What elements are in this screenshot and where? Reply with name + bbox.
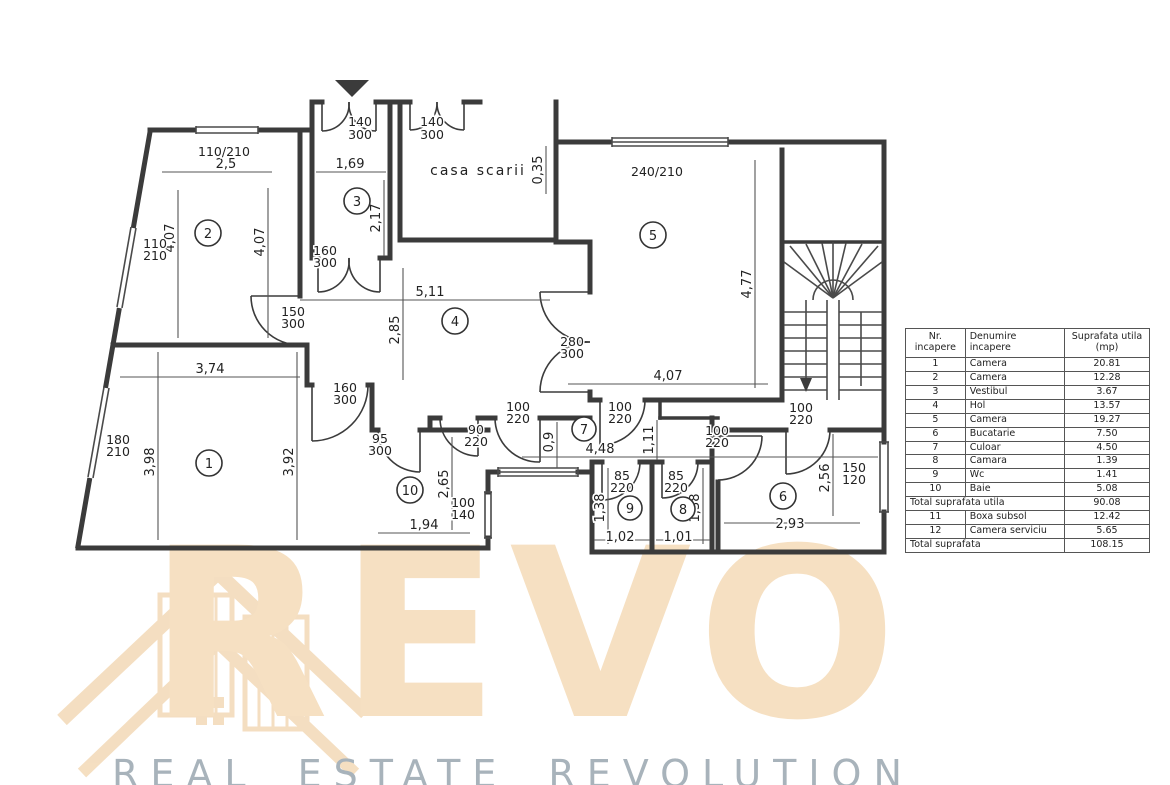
- svg-text:220: 220: [610, 480, 634, 495]
- svg-text:140: 140: [451, 507, 475, 522]
- entrance-arrow-icon: [335, 80, 369, 97]
- table-row: 9Wc1.41: [906, 469, 1150, 483]
- total-value: 108.15: [1064, 538, 1149, 552]
- svg-text:210: 210: [106, 444, 130, 459]
- table-row: 2Camera12.28: [906, 371, 1150, 385]
- total-utila-label: Total suprafata utila: [906, 497, 1065, 511]
- table-total-utila-row: Total suprafata utila 90.08: [906, 497, 1150, 511]
- room-5-number: 5: [649, 229, 657, 244]
- table-total-row: Total suprafata 108.15: [906, 538, 1150, 552]
- svg-text:300: 300: [313, 255, 337, 270]
- room-4-number: 4: [451, 315, 459, 330]
- svg-text:220: 220: [608, 411, 632, 426]
- svg-text:220: 220: [705, 435, 729, 450]
- dim-vestibul-width: 1,69: [336, 157, 365, 172]
- dim-vestibul-height: 2,17: [369, 204, 384, 233]
- interior-walls: [113, 130, 884, 552]
- room-2-number: 2: [204, 227, 212, 242]
- room-3-number: 3: [353, 195, 361, 210]
- staircase: [784, 242, 882, 400]
- room-7-number: 7: [580, 423, 588, 438]
- table-row: 11Boxa subsol12.42: [906, 511, 1150, 525]
- room-9-number: 9: [626, 502, 634, 517]
- table-header-row: Nr.incapere Denumireincapere Suprafata u…: [906, 329, 1150, 358]
- dim-wall-thickness: 0,35: [531, 156, 546, 185]
- table-row: 10Baie5.08: [906, 483, 1150, 497]
- table-row: 6Bucatarie7.50: [906, 427, 1150, 441]
- total-utila-value: 90.08: [1064, 497, 1149, 511]
- svg-text:300: 300: [333, 392, 357, 407]
- svg-text:300: 300: [368, 443, 392, 458]
- svg-text:300: 300: [348, 127, 372, 142]
- dim-bucatarie-height: 2,56: [818, 464, 833, 493]
- dim-room1-width: 3,74: [196, 362, 225, 377]
- total-label: Total suprafata: [906, 538, 1065, 552]
- header-nr: Nr.incapere: [906, 329, 966, 358]
- svg-text:220: 220: [464, 434, 488, 449]
- dim-room2-width: 2,5: [216, 157, 237, 172]
- header-denumire: Denumireincapere: [965, 329, 1064, 358]
- window-room2-top-label: 110/210: [198, 144, 250, 159]
- room-8-number: 8: [679, 503, 687, 518]
- room-6-number: 6: [779, 490, 787, 505]
- table-row: 1Camera20.81: [906, 358, 1150, 372]
- dim-room5-height: 4,77: [740, 270, 755, 299]
- table-row: 5Camera19.27: [906, 413, 1150, 427]
- staircase-label: casa scarii: [430, 163, 526, 179]
- dim-room5-width: 4,07: [654, 369, 683, 384]
- header-suprafata: Suprafata utila(mp): [1064, 329, 1149, 358]
- dim-room1-left: 3,98: [143, 448, 158, 477]
- dim-room2-right: 4,07: [253, 228, 268, 257]
- dim-culoar-length: 4,48: [586, 442, 615, 457]
- window-room5-label: 240/210: [631, 164, 683, 179]
- svg-text:300: 300: [281, 316, 305, 331]
- table-row: 4Hol13.57: [906, 399, 1150, 413]
- dim-camara-width: 1,01: [664, 530, 693, 545]
- dim-bucatarie-width: 2,93: [776, 517, 805, 532]
- room-areas-table: Nr.incapere Denumireincapere Suprafata u…: [905, 328, 1150, 553]
- dim-room1-right: 3,92: [282, 448, 297, 477]
- dim-baie-width: 1,94: [410, 518, 439, 533]
- svg-text:220: 220: [664, 480, 688, 495]
- dim-wc-height: 1,38: [593, 494, 608, 523]
- dim-hol-width: 5,11: [416, 285, 445, 300]
- svg-text:300: 300: [420, 127, 444, 142]
- room-1-number: 1: [205, 457, 213, 472]
- table-row: 7Culoar4.50: [906, 441, 1150, 455]
- svg-text:220: 220: [789, 412, 813, 427]
- dim-wc-width: 1,02: [606, 530, 635, 545]
- dim-culoar-width: 0,9: [542, 432, 557, 453]
- svg-text:300: 300: [560, 346, 584, 361]
- svg-text:210: 210: [143, 248, 167, 263]
- scanned-floorplan-page: REVO REAL ESTATE REVOLUTION: [0, 0, 1170, 785]
- svg-text:220: 220: [506, 411, 530, 426]
- table-row: 8Camara1.39: [906, 455, 1150, 469]
- dim-lobby-height: 1,11: [642, 426, 657, 455]
- dim-baie-height: 2,65: [437, 470, 452, 499]
- table-row: 12Camera serviciu5.65: [906, 525, 1150, 539]
- room-10-number: 10: [402, 484, 419, 499]
- table-row: 3Vestibul3.67: [906, 385, 1150, 399]
- svg-text:120: 120: [842, 472, 866, 487]
- dim-hol-height: 2,85: [388, 316, 403, 345]
